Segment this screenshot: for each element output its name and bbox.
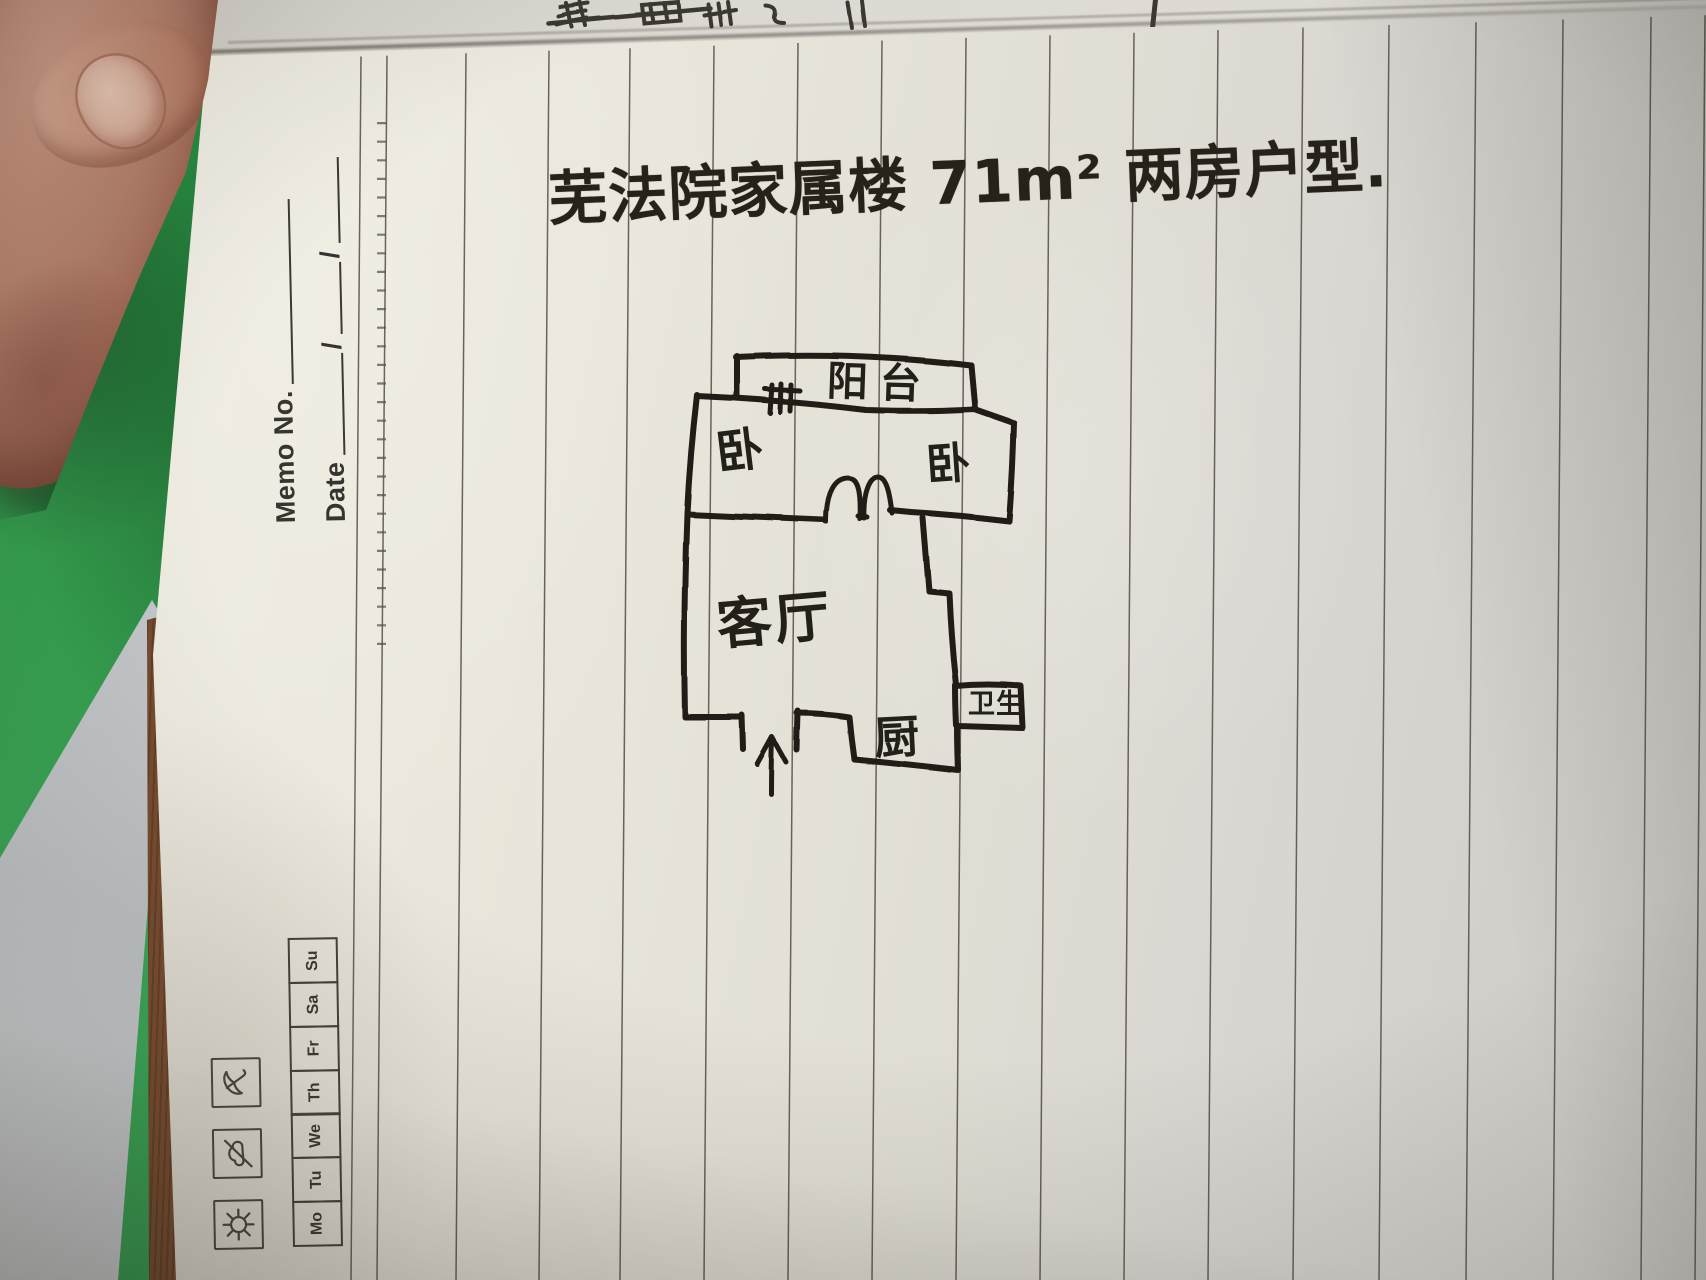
day-label: Mo bbox=[308, 1212, 326, 1235]
date-slash: / bbox=[317, 341, 348, 350]
bedroom-left-label: 卧 bbox=[713, 421, 766, 481]
day-label: Th bbox=[306, 1082, 324, 1102]
day-label: Su bbox=[304, 950, 322, 971]
memo-no-label: Memo No. bbox=[268, 390, 302, 524]
date-blank-line bbox=[341, 353, 345, 455]
memo-no-blank-line bbox=[288, 199, 294, 384]
weather-checkbox-row bbox=[210, 1019, 264, 1250]
floor-plan-room-labels: 阳台 卧 卧 客厅 厨 卫生 bbox=[713, 357, 1024, 765]
bedroom-right-label: 卧 bbox=[924, 438, 971, 492]
cloud-icon bbox=[220, 1136, 255, 1171]
double-door-arc-icon bbox=[826, 477, 892, 522]
day-box-fr: Fr bbox=[289, 1025, 340, 1072]
day-checkbox-row: MoTuWeThFrSaSu bbox=[287, 926, 341, 1247]
day-box-mo: Mo bbox=[292, 1200, 343, 1247]
day-box-sa: Sa bbox=[288, 981, 339, 1028]
day-label: We bbox=[307, 1124, 325, 1148]
weather-box-cloud bbox=[212, 1128, 263, 1179]
day-box-we: We bbox=[291, 1113, 342, 1160]
day-label: Fr bbox=[305, 1040, 323, 1056]
weather-box-umbrella bbox=[211, 1057, 262, 1108]
day-box-su: Su bbox=[288, 937, 339, 984]
date-label: Date bbox=[320, 461, 352, 522]
living-room-label: 客厅 bbox=[714, 583, 835, 657]
day-box-tu: Tu bbox=[291, 1156, 342, 1203]
umbrella-icon bbox=[219, 1065, 254, 1100]
kitchen-label: 厨 bbox=[873, 710, 921, 765]
day-label: Sa bbox=[305, 995, 323, 1015]
balcony-label: 阳台 bbox=[826, 357, 934, 409]
date-blank-line bbox=[339, 262, 343, 334]
notebook-photo: 阳台 卧 卧 客厅 厨 卫生 Memo No. Date / / bbox=[0, 0, 1706, 1280]
day-box-th: Th bbox=[290, 1069, 341, 1116]
sun-icon bbox=[221, 1207, 256, 1242]
entry-arrow-up-icon bbox=[757, 737, 786, 794]
date-slash: / bbox=[315, 250, 346, 259]
memo-header: Memo No. Date / / bbox=[243, 118, 356, 524]
bathroom-label: 卫生 bbox=[968, 689, 1024, 720]
weather-box-sun bbox=[213, 1199, 264, 1250]
date-blank-line bbox=[337, 157, 341, 243]
day-label: Tu bbox=[308, 1170, 326, 1189]
